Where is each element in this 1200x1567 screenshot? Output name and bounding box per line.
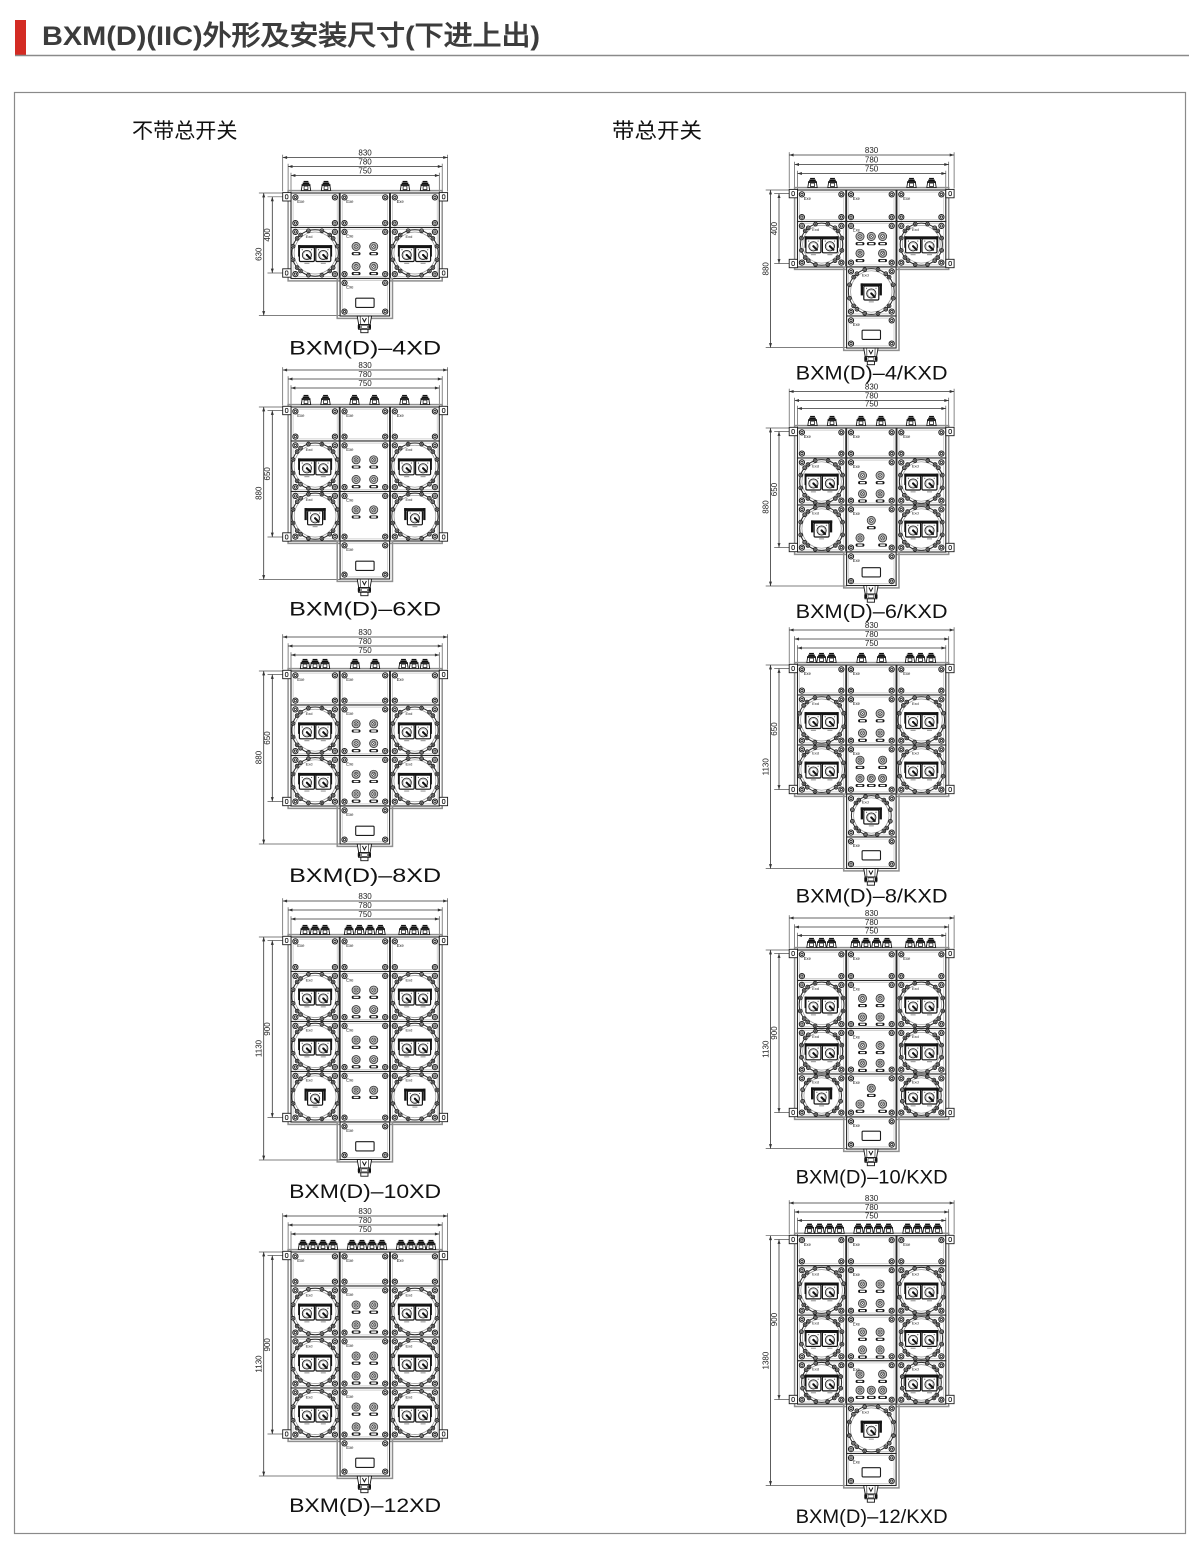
svg-text:750: 750: [358, 646, 372, 655]
svg-text:750: 750: [358, 1225, 372, 1234]
svg-text:Exe: Exe: [853, 1242, 861, 1247]
svg-text:Exe: Exe: [346, 1343, 354, 1348]
svg-text:1130: 1130: [761, 1040, 770, 1058]
svg-text:Exd: Exd: [405, 1027, 412, 1032]
svg-text:830: 830: [865, 621, 879, 630]
svg-text:Exd: Exd: [812, 1034, 819, 1039]
svg-text:Exe: Exe: [346, 547, 354, 552]
svg-text:780: 780: [358, 158, 372, 167]
svg-text:750: 750: [358, 910, 372, 919]
svg-text:BXM(D)–12XD: BXM(D)–12XD: [289, 1495, 441, 1517]
svg-text:Exd: Exd: [812, 1271, 819, 1276]
svg-text:Exd: Exd: [405, 711, 412, 716]
svg-text:750: 750: [865, 927, 879, 936]
svg-text:Exe: Exe: [346, 1028, 354, 1033]
svg-text:Exd: Exd: [812, 1321, 819, 1326]
svg-text:900: 900: [770, 1312, 779, 1326]
svg-text:Exd: Exd: [912, 1321, 919, 1326]
svg-text:Exd: Exd: [912, 751, 919, 756]
svg-text:Exe: Exe: [346, 711, 354, 716]
svg-text:Exd: Exd: [812, 1080, 819, 1085]
svg-text:Exe: Exe: [903, 1242, 911, 1247]
svg-text:830: 830: [358, 628, 372, 637]
svg-text:Exd: Exd: [306, 447, 313, 452]
svg-text:780: 780: [358, 1216, 372, 1225]
svg-text:830: 830: [358, 149, 372, 158]
svg-text:Exd: Exd: [912, 464, 919, 469]
svg-text:Exe: Exe: [346, 1078, 354, 1083]
svg-text:Exe: Exe: [297, 413, 305, 418]
svg-text:Exe: Exe: [853, 196, 861, 201]
svg-text:Exe: Exe: [346, 978, 354, 983]
svg-text:880: 880: [761, 500, 770, 514]
svg-text:Exd: Exd: [405, 1394, 412, 1399]
svg-text:Exe: Exe: [346, 1292, 354, 1297]
svg-text:Exe: Exe: [346, 1258, 354, 1263]
svg-text:Exd: Exd: [862, 273, 869, 278]
svg-text:1130: 1130: [255, 1355, 264, 1373]
svg-text:Exd: Exd: [405, 762, 412, 767]
svg-text:780: 780: [358, 901, 372, 910]
svg-text:Exe: Exe: [853, 1460, 861, 1465]
svg-text:Exd: Exd: [812, 511, 819, 516]
svg-text:Exe: Exe: [853, 956, 861, 961]
svg-text:Exd: Exd: [306, 1078, 313, 1083]
svg-text:BXM(D)–6/KXD: BXM(D)–6/KXD: [796, 601, 948, 623]
svg-text:Exe: Exe: [804, 434, 812, 439]
svg-text:Exe: Exe: [346, 812, 354, 817]
svg-text:Exd: Exd: [405, 1343, 412, 1348]
svg-text:880: 880: [255, 750, 264, 764]
svg-text:Exe: Exe: [346, 498, 354, 503]
svg-text:830: 830: [865, 383, 879, 392]
svg-text:Exd: Exd: [405, 447, 412, 452]
svg-text:Exd: Exd: [306, 1343, 313, 1348]
svg-text:830: 830: [865, 1194, 879, 1203]
svg-text:Exd: Exd: [306, 711, 313, 716]
svg-text:Exe: Exe: [346, 1445, 354, 1450]
svg-text:BXM(D)–8/KXD: BXM(D)–8/KXD: [796, 886, 948, 908]
svg-text:750: 750: [865, 639, 879, 648]
svg-text:Exd: Exd: [306, 977, 313, 982]
svg-text:750: 750: [865, 165, 879, 174]
svg-text:Exe: Exe: [853, 1080, 861, 1085]
svg-text:750: 750: [358, 379, 372, 388]
svg-text:Exe: Exe: [397, 413, 405, 418]
svg-text:Exe: Exe: [853, 464, 861, 469]
svg-text:650: 650: [770, 482, 779, 496]
svg-text:830: 830: [358, 1207, 372, 1216]
svg-text:Exd: Exd: [405, 1078, 412, 1083]
svg-text:Exe: Exe: [853, 1272, 861, 1277]
svg-text:BXM(D)–4/KXD: BXM(D)–4/KXD: [796, 363, 948, 385]
svg-text:BXM(D)–10/KXD: BXM(D)–10/KXD: [796, 1167, 948, 1189]
svg-text:Exe: Exe: [853, 1321, 861, 1326]
svg-text:Exd: Exd: [306, 234, 313, 239]
svg-text:Exe: Exe: [297, 943, 305, 948]
svg-text:Exd: Exd: [912, 986, 919, 991]
svg-text:Exd: Exd: [812, 227, 819, 232]
svg-text:Exd: Exd: [405, 977, 412, 982]
svg-text:Exd: Exd: [306, 1394, 313, 1399]
svg-text:830: 830: [865, 909, 879, 918]
svg-text:Exe: Exe: [853, 843, 861, 848]
svg-text:900: 900: [770, 1026, 779, 1040]
svg-text:Exe: Exe: [903, 956, 911, 961]
svg-text:Exd: Exd: [812, 751, 819, 756]
svg-text:750: 750: [358, 167, 372, 176]
svg-text:750: 750: [865, 400, 879, 409]
svg-text:BXM(D)–6XD: BXM(D)–6XD: [289, 599, 441, 621]
svg-text:Exe: Exe: [297, 677, 305, 682]
svg-text:1130: 1130: [255, 1039, 264, 1057]
svg-text:Exe: Exe: [346, 1128, 354, 1133]
svg-text:Exd: Exd: [306, 1027, 313, 1032]
svg-text:Exe: Exe: [346, 762, 354, 767]
svg-text:Exd: Exd: [862, 1410, 869, 1415]
svg-text:Exd: Exd: [812, 986, 819, 991]
svg-text:Exe: Exe: [853, 751, 861, 756]
svg-text:Exd: Exd: [912, 701, 919, 706]
svg-text:BXM(D)–8XD: BXM(D)–8XD: [289, 865, 441, 887]
svg-text:Exe: Exe: [853, 511, 861, 516]
svg-text:780: 780: [358, 637, 372, 646]
svg-text:Exd: Exd: [405, 497, 412, 502]
svg-text:Exe: Exe: [397, 199, 405, 204]
svg-text:Exd: Exd: [405, 1292, 412, 1297]
svg-text:Exe: Exe: [853, 1035, 861, 1040]
svg-text:Exd: Exd: [912, 227, 919, 232]
svg-text:650: 650: [263, 467, 272, 481]
svg-text:Exd: Exd: [812, 701, 819, 706]
svg-text:Exe: Exe: [804, 671, 812, 676]
svg-text:750: 750: [865, 1212, 879, 1221]
svg-text:Exe: Exe: [853, 434, 861, 439]
svg-text:Exe: Exe: [853, 558, 861, 563]
svg-text:Exe: Exe: [346, 943, 354, 948]
svg-text:830: 830: [358, 892, 372, 901]
svg-text:880: 880: [761, 262, 770, 276]
svg-text:Exe: Exe: [853, 228, 861, 233]
svg-text:Exd: Exd: [862, 800, 869, 805]
svg-text:Exd: Exd: [306, 1292, 313, 1297]
svg-text:Exe: Exe: [397, 943, 405, 948]
svg-text:880: 880: [255, 486, 264, 500]
svg-text:Exe: Exe: [346, 1394, 354, 1399]
svg-text:780: 780: [358, 370, 372, 379]
svg-text:Exd: Exd: [912, 511, 919, 516]
svg-text:400: 400: [263, 228, 272, 242]
svg-text:Exe: Exe: [853, 1123, 861, 1128]
svg-text:830: 830: [865, 146, 879, 155]
svg-text:Exd: Exd: [912, 1271, 919, 1276]
svg-text:Exd: Exd: [405, 234, 412, 239]
svg-text:900: 900: [263, 1022, 272, 1036]
svg-text:Exd: Exd: [306, 762, 313, 767]
svg-text:带总开关: 带总开关: [612, 120, 702, 143]
svg-text:Exe: Exe: [903, 434, 911, 439]
svg-text:Exe: Exe: [853, 987, 861, 992]
svg-text:Exe: Exe: [297, 1258, 305, 1263]
svg-text:不带总开关: 不带总开关: [132, 120, 238, 143]
svg-text:BXM(D)–4XD: BXM(D)–4XD: [289, 338, 441, 360]
svg-text:Exd: Exd: [912, 1080, 919, 1085]
svg-text:400: 400: [770, 221, 779, 235]
svg-text:Exe: Exe: [903, 196, 911, 201]
svg-text:650: 650: [770, 722, 779, 736]
svg-text:780: 780: [865, 156, 879, 165]
svg-text:Exe: Exe: [804, 956, 812, 961]
svg-text:Exd: Exd: [812, 1366, 819, 1371]
svg-text:630: 630: [255, 247, 264, 261]
svg-text:Exe: Exe: [346, 413, 354, 418]
svg-text:BXM(D)–12/KXD: BXM(D)–12/KXD: [796, 1506, 948, 1528]
svg-text:Exe: Exe: [346, 234, 354, 239]
svg-text:Exd: Exd: [812, 464, 819, 469]
svg-text:Exe: Exe: [397, 1258, 405, 1263]
svg-text:Exe: Exe: [346, 677, 354, 682]
svg-text:Exe: Exe: [804, 196, 812, 201]
svg-text:Exe: Exe: [346, 285, 354, 290]
svg-text:Exe: Exe: [853, 701, 861, 706]
svg-text:BXM(D)–10XD: BXM(D)–10XD: [289, 1181, 441, 1203]
svg-text:1130: 1130: [761, 758, 770, 776]
svg-text:Exe: Exe: [804, 1242, 812, 1247]
svg-text:Exe: Exe: [853, 322, 861, 327]
svg-text:900: 900: [263, 1338, 272, 1352]
svg-text:830: 830: [358, 361, 372, 370]
svg-text:Exe: Exe: [297, 199, 305, 204]
svg-text:Exd: Exd: [912, 1034, 919, 1039]
svg-text:1380: 1380: [761, 1351, 770, 1369]
svg-text:Exe: Exe: [346, 199, 354, 204]
svg-text:Exd: Exd: [306, 497, 313, 502]
svg-text:Exe: Exe: [397, 677, 405, 682]
svg-text:BXM(D)(IIC)外形及安装尺寸(下进上出): BXM(D)(IIC)外形及安装尺寸(下进上出): [42, 21, 540, 51]
svg-text:Exe: Exe: [346, 447, 354, 452]
svg-text:Exe: Exe: [903, 671, 911, 676]
svg-text:650: 650: [263, 731, 272, 745]
svg-text:780: 780: [865, 630, 879, 639]
svg-text:Exe: Exe: [853, 671, 861, 676]
svg-text:Exd: Exd: [912, 1366, 919, 1371]
